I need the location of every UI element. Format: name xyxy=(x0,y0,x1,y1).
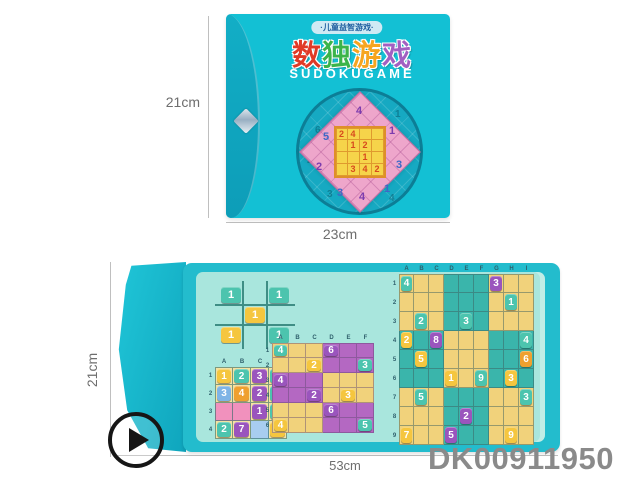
row-label: 2 xyxy=(390,293,399,312)
grid-cell xyxy=(489,331,504,350)
grid-cell: 1 xyxy=(219,325,243,345)
grid-cell xyxy=(444,274,459,293)
grid-cell xyxy=(474,312,489,331)
grid-cell: 1 xyxy=(215,367,233,385)
number-tile: 2 xyxy=(217,422,231,437)
number-tile: 3 xyxy=(460,313,472,329)
grid-cell xyxy=(414,407,429,426)
grid-cell: 3 xyxy=(340,388,357,403)
grid-cell: 3 xyxy=(489,274,504,293)
grid-cell xyxy=(272,403,289,418)
play-icon xyxy=(129,428,149,452)
grid-cell xyxy=(519,407,534,426)
number-tile: 2 xyxy=(460,408,472,424)
row-label: 1 xyxy=(206,367,215,385)
number-tile: 3 xyxy=(505,370,517,386)
grid-cell: 3 xyxy=(459,312,474,331)
grid-cell xyxy=(474,407,489,426)
column-label: G xyxy=(489,265,504,274)
grid-cell: 7 xyxy=(233,421,251,439)
row-label: 4 xyxy=(263,388,272,403)
grid-cell xyxy=(306,403,323,418)
column-label: B xyxy=(414,265,429,274)
row-label: 9 xyxy=(390,426,399,445)
grid-cell: 4 xyxy=(233,385,251,403)
grid-cell: 5 xyxy=(414,388,429,407)
number-tile: 5 xyxy=(358,419,372,431)
grid-cell: 2 xyxy=(306,388,323,403)
grid-cell xyxy=(215,403,233,421)
grid-cell: 7 xyxy=(399,426,414,445)
grid-cell xyxy=(272,358,289,373)
grid-cell xyxy=(323,388,340,403)
grid-cell xyxy=(340,358,357,373)
grid-cell: 4 xyxy=(519,331,534,350)
grid-cell xyxy=(489,388,504,407)
grid-cell xyxy=(429,350,444,369)
number-tile: 3 xyxy=(217,386,231,401)
grid-cell xyxy=(429,293,444,312)
grid-cell: 1 xyxy=(219,285,243,305)
grid-cell xyxy=(267,305,291,325)
number-tile: 4 xyxy=(234,386,249,401)
number-tile: 1 xyxy=(221,327,241,343)
grid-cell: 6 xyxy=(323,343,340,358)
grid-cell: 3 xyxy=(519,388,534,407)
grid-cell: 9 xyxy=(474,369,489,388)
open-book: 11111 ABCD11231234213134274 ABCDEF146223… xyxy=(183,263,560,452)
grid-cell xyxy=(306,418,323,433)
number-tile: 4 xyxy=(401,276,412,291)
grid-cell xyxy=(289,373,306,388)
grid-cell xyxy=(429,369,444,388)
grid-cell xyxy=(504,312,519,331)
column-label: E xyxy=(459,265,474,274)
grid-cell xyxy=(489,407,504,426)
grid-cell xyxy=(519,369,534,388)
row-label: 6 xyxy=(390,369,399,388)
grid-cell xyxy=(444,331,459,350)
cover-circle-design: 612534 45132341 24121342 xyxy=(296,88,423,215)
number-tile: 1 xyxy=(245,307,265,323)
column-label: C xyxy=(306,334,323,343)
decorative-number: 4 xyxy=(356,105,362,117)
grid-cell: 1 xyxy=(444,369,459,388)
play-button[interactable] xyxy=(108,412,164,468)
row-label: 2 xyxy=(263,358,272,373)
grid-cell xyxy=(306,343,323,358)
grid-cell xyxy=(414,293,429,312)
number-tile: 3 xyxy=(358,359,372,371)
row-label: 5 xyxy=(390,350,399,369)
number-tile: 5 xyxy=(415,389,427,405)
grid-cell xyxy=(459,388,474,407)
grid-cell xyxy=(323,418,340,433)
grid-cell xyxy=(459,331,474,350)
grid-cell: 4 xyxy=(272,418,289,433)
number-tile: 1 xyxy=(217,369,231,383)
grid-cell: 2 xyxy=(414,312,429,331)
grid-cell xyxy=(414,274,429,293)
decorative-number: 2 xyxy=(316,161,322,173)
grid-cell xyxy=(519,312,534,331)
row-label: 4 xyxy=(390,331,399,350)
grid-cell: 2 xyxy=(459,407,474,426)
decorative-number: 1 xyxy=(389,125,395,137)
grid-cell xyxy=(289,343,306,358)
column-label: F xyxy=(474,265,489,274)
box-cover: ·儿童益智游戏· 数独游戏 SUDOKUGAME 612534 45132341… xyxy=(226,14,450,218)
row-label: 5 xyxy=(263,403,272,418)
grid-cell xyxy=(504,331,519,350)
product-code: DK00911950 xyxy=(428,441,614,477)
column-label: F xyxy=(357,334,374,343)
grid-cell xyxy=(306,373,323,388)
row-label: 7 xyxy=(390,388,399,407)
grid-cell: 1 xyxy=(243,305,267,325)
number-tile: 1 xyxy=(269,287,289,303)
grid-cell xyxy=(444,407,459,426)
grid-cell xyxy=(399,369,414,388)
row-label: 3 xyxy=(390,312,399,331)
number-tile: 6 xyxy=(324,404,338,416)
row-label: 8 xyxy=(390,407,399,426)
grid-cell xyxy=(243,285,267,305)
grid-cell xyxy=(399,312,414,331)
grid-cell xyxy=(399,293,414,312)
number-tile: 4 xyxy=(274,374,287,386)
top-width-label: 23cm xyxy=(300,226,380,242)
number-tile: 5 xyxy=(415,351,427,367)
column-label: C xyxy=(429,265,444,274)
grid-cell: 1 xyxy=(504,293,519,312)
grid-cell xyxy=(233,403,251,421)
grid-cell xyxy=(289,388,306,403)
number-tile: 1 xyxy=(445,370,457,386)
column-label: A xyxy=(215,358,233,367)
number-tile: 3 xyxy=(341,389,355,401)
grid-cell xyxy=(489,293,504,312)
column-label: A xyxy=(399,265,414,274)
decorative-number: 3 xyxy=(396,159,402,171)
number-tile: 2 xyxy=(401,332,412,348)
decorative-number: 4 xyxy=(359,191,365,203)
grid-cell xyxy=(504,407,519,426)
number-tile: 2 xyxy=(307,359,321,371)
column-label: E xyxy=(340,334,357,343)
grid-cell: 6 xyxy=(519,350,534,369)
grid-cell: 2 xyxy=(306,358,323,373)
decorative-number: 1 xyxy=(384,183,390,195)
grid-cell xyxy=(474,388,489,407)
top-height-measure-line xyxy=(208,16,209,218)
grid-cell xyxy=(429,407,444,426)
number-tile: 6 xyxy=(520,351,532,367)
number-tile: 3 xyxy=(520,389,532,405)
sudoku-grid-6x6: ABCDEF1462233442356645 xyxy=(263,334,374,433)
grid-cell xyxy=(414,426,429,445)
number-tile: 1 xyxy=(221,287,241,303)
bottom-height-label: 21cm xyxy=(84,348,100,392)
grid-cell xyxy=(357,343,374,358)
grid-cell: 2 xyxy=(399,331,414,350)
row-label: 2 xyxy=(206,385,215,403)
number-tile: 4 xyxy=(274,345,287,356)
grid-cell: 4 xyxy=(272,343,289,358)
grid-cell: 5 xyxy=(414,350,429,369)
grid-cell xyxy=(504,388,519,407)
grid-cell xyxy=(289,418,306,433)
grid-cell xyxy=(504,350,519,369)
row-label: 1 xyxy=(390,274,399,293)
grid-cell xyxy=(399,388,414,407)
grid-cell: 4 xyxy=(399,274,414,293)
grid-cell: 2 xyxy=(233,367,251,385)
decorative-number: 5 xyxy=(323,131,329,143)
grid-cell: 5 xyxy=(357,418,374,433)
row-label: 3 xyxy=(206,403,215,421)
number-tile: 2 xyxy=(234,369,249,383)
grid-cell xyxy=(444,388,459,407)
row-label: 4 xyxy=(206,421,215,439)
number-tile: 9 xyxy=(475,370,487,386)
row-label: 3 xyxy=(263,373,272,388)
row-label: 6 xyxy=(263,418,272,433)
column-label: D xyxy=(323,334,340,343)
grid-cell: 2 xyxy=(215,421,233,439)
grid-cell xyxy=(444,293,459,312)
number-tile: 4 xyxy=(274,419,287,431)
grid-cell xyxy=(459,369,474,388)
grid-cell xyxy=(459,293,474,312)
grid-cell xyxy=(474,293,489,312)
grid-cell xyxy=(474,331,489,350)
column-label: D xyxy=(444,265,459,274)
grid-cell xyxy=(323,373,340,388)
top-height-label: 21cm xyxy=(148,94,200,110)
column-label: I xyxy=(519,265,534,274)
number-tile: 7 xyxy=(401,427,412,443)
grid-cell xyxy=(459,350,474,369)
grid-cell xyxy=(323,358,340,373)
grid-cell xyxy=(219,305,243,325)
number-tile: 2 xyxy=(415,313,427,329)
grid-cell xyxy=(474,350,489,369)
grid-cell xyxy=(289,403,306,418)
grid-cell xyxy=(289,358,306,373)
number-tile: 1 xyxy=(505,294,517,310)
column-label: B xyxy=(289,334,306,343)
grid-cell xyxy=(340,418,357,433)
grid-cell xyxy=(519,293,534,312)
grid-cell xyxy=(429,312,444,331)
grid-cell xyxy=(340,343,357,358)
number-tile: 3 xyxy=(490,276,502,291)
grid-cell: 6 xyxy=(323,403,340,418)
diamond-numbers: 45132341 xyxy=(299,91,420,212)
number-tile: 4 xyxy=(520,332,532,348)
column-label: H xyxy=(504,265,519,274)
grid-cell xyxy=(444,350,459,369)
grid-cell xyxy=(399,350,414,369)
number-tile: 7 xyxy=(234,422,249,437)
grid-cell xyxy=(489,312,504,331)
grid-cell xyxy=(340,403,357,418)
grid-cell xyxy=(474,274,489,293)
grid-cell xyxy=(399,407,414,426)
top-width-measure-line xyxy=(226,222,450,223)
grid-cell xyxy=(489,369,504,388)
grid-cell xyxy=(272,388,289,403)
grid-cell xyxy=(340,373,357,388)
grid-cell xyxy=(357,403,374,418)
grid-cell xyxy=(429,388,444,407)
column-label: B xyxy=(233,358,251,367)
grid-cell xyxy=(459,274,474,293)
grid-cell xyxy=(489,350,504,369)
number-tile: 6 xyxy=(324,345,338,356)
grid-cell: 4 xyxy=(272,373,289,388)
grid-cell: 3 xyxy=(357,358,374,373)
product-photo: 21cm 23cm ·儿童益智游戏· 数独游戏 SUDOKUGAME 61253… xyxy=(0,0,640,480)
sudoku-grid-9x9: ABCDEFGHI1432132342845566193753829759 xyxy=(390,265,534,445)
grid-cell: 1 xyxy=(267,285,291,305)
number-tile: 2 xyxy=(307,389,321,401)
grid-cell xyxy=(504,274,519,293)
number-tile: 8 xyxy=(430,332,442,348)
column-label: A xyxy=(272,334,289,343)
grid-cell xyxy=(357,373,374,388)
grid-cell xyxy=(444,312,459,331)
cover-subtitle: SUDOKUGAME xyxy=(254,66,450,81)
grid-cell xyxy=(414,331,429,350)
grid-cell xyxy=(519,274,534,293)
grid-cell xyxy=(414,369,429,388)
grid-cell: 3 xyxy=(504,369,519,388)
grid-cell: 8 xyxy=(429,331,444,350)
grid-cell: 3 xyxy=(215,385,233,403)
grid-cell xyxy=(429,274,444,293)
grid-cell xyxy=(357,388,374,403)
row-label: 1 xyxy=(263,343,272,358)
decorative-number: 3 xyxy=(337,187,343,199)
bottom-width-label: 53cm xyxy=(310,458,380,473)
